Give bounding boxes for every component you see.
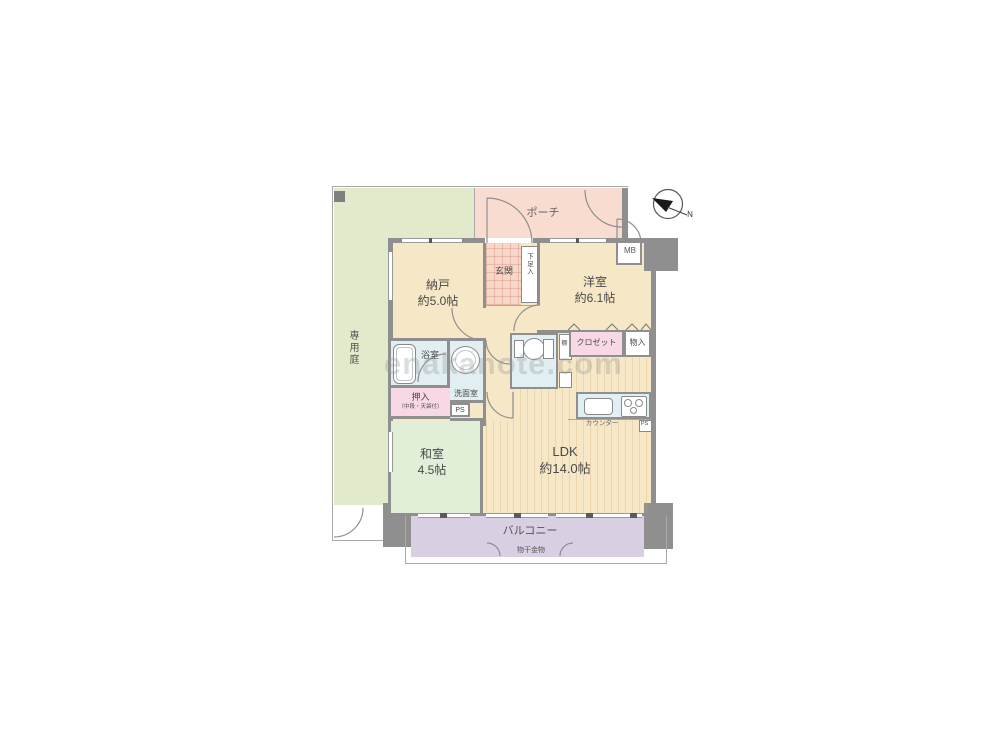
wall-storage-right-upper (483, 243, 486, 308)
shoe-box-label: 下足入 (524, 253, 532, 276)
washroom-label: 洗面室 (448, 389, 484, 399)
porch-garden-divider (474, 188, 475, 241)
ldk-name: LDK (515, 444, 615, 461)
kitchen-pipe-space-label: PS (639, 421, 650, 428)
stove-burner-3 (630, 407, 637, 414)
window-storage-top (402, 238, 462, 243)
storage-room-size: 約5.0帖 (398, 294, 478, 310)
futon-closet-label: 押入 （中段・天袋付） (391, 392, 450, 411)
entrance-step-line (486, 305, 536, 306)
ldk-floor-left (486, 421, 513, 513)
western-room-size: 約6.1帖 (555, 291, 635, 307)
window-tick-3 (586, 513, 593, 518)
compass-north-label: N (684, 210, 696, 220)
garden-area-strip (334, 188, 388, 505)
storage-room-label: 納戸 約5.0帖 (398, 278, 478, 309)
japanese-room-size: 4.5帖 (392, 463, 472, 479)
stove-burner-2 (635, 399, 643, 407)
compass-icon (652, 190, 687, 219)
storage-label: 物入 (624, 338, 651, 348)
western-room-label: 洋室 約6.1帖 (555, 275, 635, 306)
entry-door-opening (485, 238, 533, 243)
japanese-room-name: 和室 (392, 447, 472, 463)
garden-label: 専用庭 (346, 330, 359, 366)
window-tick-4 (630, 513, 637, 518)
porch-label: ポーチ (508, 206, 578, 220)
watermark: enakanote.com (384, 346, 623, 382)
wall-storage-bottom (391, 338, 486, 341)
kitchen-sink (584, 398, 613, 415)
western-room-name: 洋室 (555, 275, 635, 291)
window-tick-1 (440, 513, 447, 518)
floor-plan: ポーチ 専用庭 納戸 約5.0帖 玄関 下足入 洋室 約6.1帖 MB 浴室 洗… (0, 0, 1000, 750)
counter-label: カウンター (578, 420, 626, 428)
ldk-size: 約14.0帖 (515, 461, 615, 478)
ldk-label: LDK 約14.0帖 (515, 444, 615, 478)
stove-burner-1 (624, 399, 632, 407)
corner-block-top-right (644, 238, 678, 271)
storage-room-name: 納戸 (398, 278, 478, 294)
laundry-hardware-label: 物干金物 (506, 546, 556, 555)
window-storage-left (388, 252, 393, 300)
window-mullion-1 (429, 238, 432, 243)
window-mullion-2 (576, 238, 579, 243)
garden-gate-arc (334, 508, 363, 537)
futon-closet-name: 押入 (391, 392, 450, 404)
site-boundary-left (332, 186, 333, 541)
entrance-label: 玄関 (489, 266, 519, 278)
japanese-room-label: 和室 4.5帖 (392, 447, 472, 478)
site-boundary-bottom (332, 540, 389, 541)
wall-japanese-room-right (480, 421, 483, 513)
meter-box-label: MB (618, 246, 642, 256)
futon-closet-note: （中段・天袋付） (391, 404, 450, 411)
garden-corner-post (334, 191, 345, 202)
wall-futon-closet-bottom (391, 416, 450, 419)
window-tick-2 (514, 513, 521, 518)
pipe-space-label: PS (451, 406, 469, 415)
site-boundary-top (332, 186, 628, 187)
balcony-label: バルコニー (495, 524, 565, 538)
wall-above-japanese-room (450, 418, 483, 421)
wall-bath-bottom (391, 385, 450, 388)
porch-right-wall (622, 188, 628, 243)
